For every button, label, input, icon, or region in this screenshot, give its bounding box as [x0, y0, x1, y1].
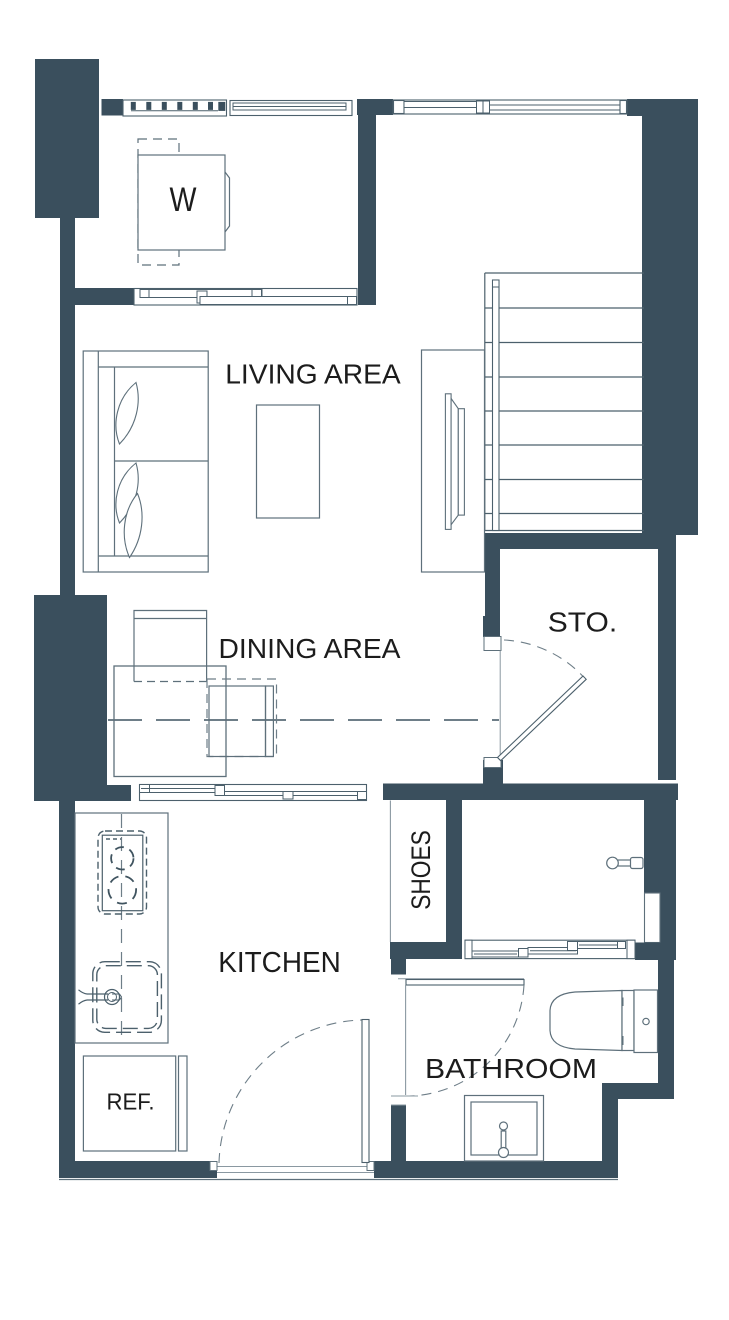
svg-text:W: W	[170, 181, 197, 219]
svg-text:LIVING AREA: LIVING AREA	[225, 358, 401, 389]
svg-text:STO.: STO.	[548, 607, 618, 638]
svg-text:DINING AREA: DINING AREA	[219, 633, 401, 664]
svg-text:SHOES: SHOES	[406, 830, 436, 910]
svg-text:BATHROOM: BATHROOM	[425, 1053, 597, 1084]
svg-text:KITCHEN: KITCHEN	[218, 947, 341, 979]
svg-text:REF.: REF.	[107, 1089, 155, 1115]
